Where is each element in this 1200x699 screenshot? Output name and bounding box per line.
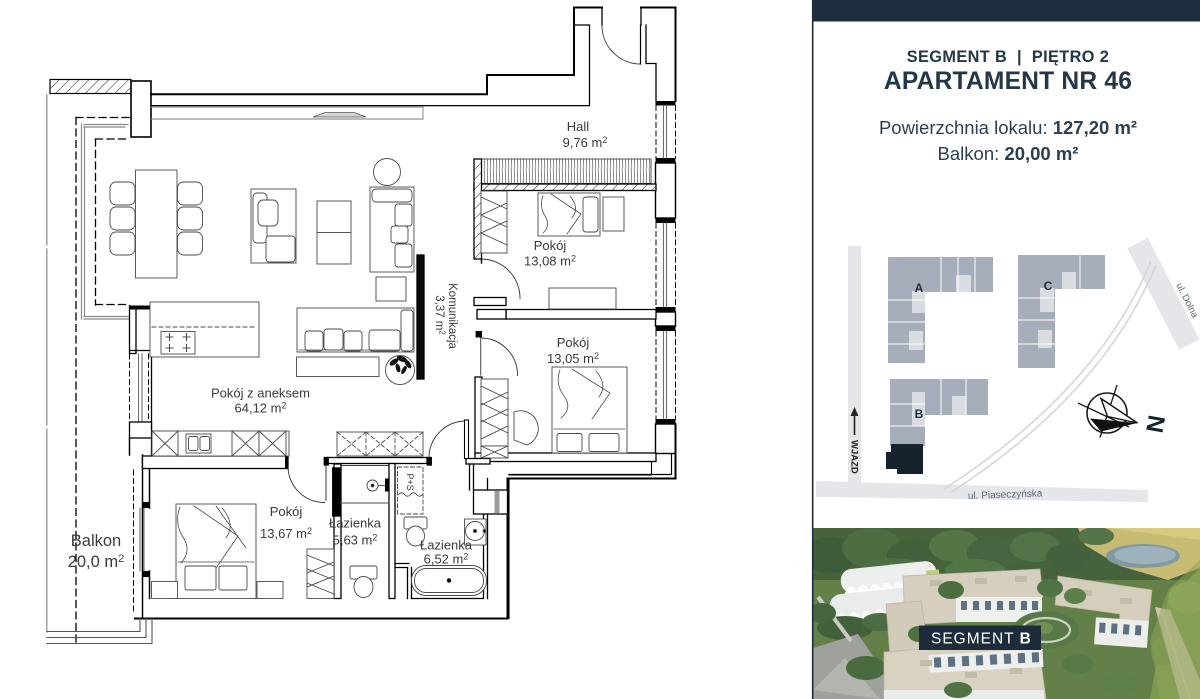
svg-text:B: B (915, 407, 924, 421)
svg-text:9,76 m2: 9,76 m2 (563, 135, 608, 150)
svg-text:Pokój: Pokój (534, 238, 567, 253)
svg-text:C: C (1044, 279, 1053, 293)
svg-text:SEGMENT B: SEGMENT B (931, 631, 1032, 648)
svg-text:Łazienka: Łazienka (329, 516, 382, 531)
svg-text:Komunikacja: Komunikacja (446, 283, 458, 349)
svg-text:13,67 m2: 13,67 m2 (260, 526, 312, 541)
svg-text:A: A (915, 281, 924, 295)
svg-text:13,05 m2: 13,05 m2 (547, 351, 599, 366)
svg-text:N: N (1140, 413, 1170, 435)
svg-text:Pokój z aneksem: Pokój z aneksem (211, 386, 310, 401)
svg-text:SEGMENT B | PIĘTRO 2: SEGMENT B | PIĘTRO 2 (907, 48, 1109, 66)
svg-text:6,52 m2: 6,52 m2 (424, 552, 469, 567)
svg-text:Pokój: Pokój (557, 335, 590, 350)
svg-text:Pokój: Pokój (270, 504, 303, 519)
svg-text:Łazienka: Łazienka (420, 538, 473, 553)
svg-text:WJAZD: WJAZD (849, 440, 860, 474)
svg-text:Hall: Hall (567, 119, 590, 134)
svg-text:5,63 m2: 5,63 m2 (333, 533, 378, 548)
svg-text:64,12 m2: 64,12 m2 (235, 401, 287, 416)
svg-text:Balkon: Balkon (71, 532, 121, 550)
svg-text:3,37 m2: 3,37 m2 (433, 295, 447, 335)
svg-text:APARTAMENT NR 46: APARTAMENT NR 46 (884, 68, 1132, 95)
svg-text:Powierzchnia lokalu: 127,20 m²: Powierzchnia lokalu: 127,20 m² (879, 117, 1137, 138)
svg-text:Balkon: 20,00 m²: Balkon: 20,00 m² (938, 143, 1079, 164)
svg-text:P+S: P+S (405, 474, 415, 491)
svg-text:20,0 m2: 20,0 m2 (68, 553, 125, 571)
svg-text:13,08 m2: 13,08 m2 (524, 254, 576, 269)
